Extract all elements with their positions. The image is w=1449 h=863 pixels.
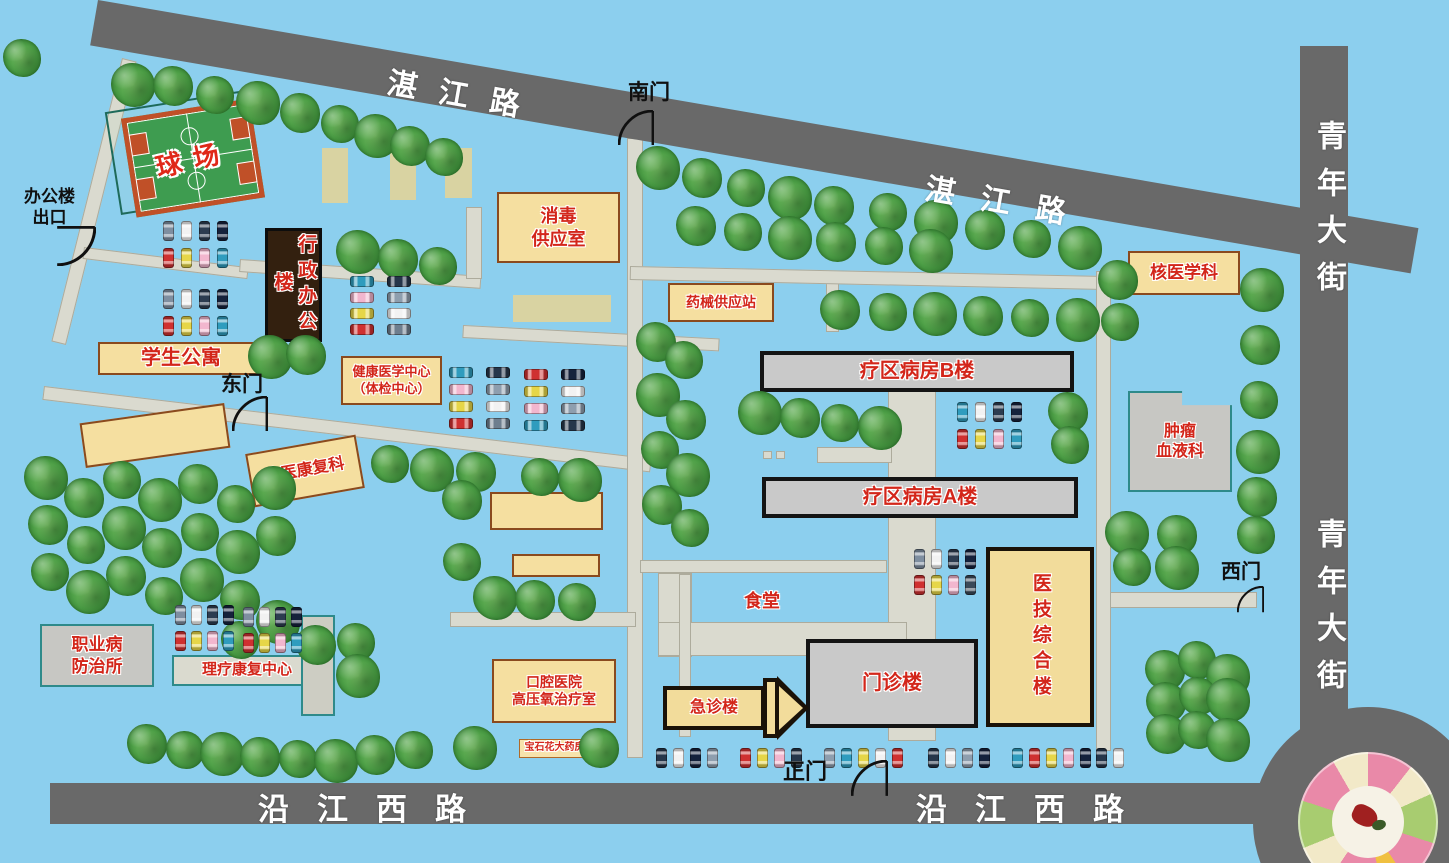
- parked-car: [387, 324, 411, 335]
- tree: [66, 570, 110, 614]
- parked-car: [449, 384, 473, 395]
- tree: [1098, 260, 1138, 300]
- tree: [1101, 303, 1139, 341]
- tree: [1240, 325, 1280, 365]
- parked-car: [561, 386, 585, 397]
- student-apartment: 学生公寓: [98, 342, 264, 375]
- canteen: 食堂: [722, 586, 802, 616]
- tree: [1206, 678, 1250, 722]
- ward-building-b-label: 疗区病房B楼: [860, 359, 974, 384]
- tree: [153, 66, 193, 106]
- occupational-disease-institute-label: 职业病防治所: [72, 634, 123, 677]
- physio-rehab-center: 理疗康复中心: [172, 655, 322, 686]
- parked-car: [259, 607, 270, 627]
- canteen-label: 食堂: [744, 590, 780, 613]
- parked-car: [223, 631, 234, 651]
- parked-car: [975, 429, 986, 449]
- tree: [858, 406, 902, 450]
- oncology-hematology: 肿瘤血液科: [1128, 391, 1232, 492]
- parked-car: [163, 289, 174, 309]
- tree: [738, 391, 782, 435]
- parked-car: [524, 369, 548, 380]
- parked-car: [1113, 748, 1124, 768]
- gate-west-door-icon: [1237, 586, 1264, 613]
- walkway: [466, 207, 482, 279]
- parked-car: [243, 633, 254, 653]
- tree: [666, 400, 706, 440]
- walkway: [640, 560, 887, 573]
- parked-car: [175, 605, 186, 625]
- parked-car: [350, 276, 374, 287]
- parked-car: [561, 369, 585, 380]
- tree: [1155, 546, 1199, 590]
- tree: [521, 458, 559, 496]
- tree: [768, 216, 812, 260]
- tree: [196, 76, 234, 114]
- tree: [217, 485, 255, 523]
- tree: [1056, 298, 1100, 342]
- parked-car: [993, 402, 1004, 422]
- parked-car: [1063, 748, 1074, 768]
- tree: [913, 292, 957, 336]
- pharmacy-supply-station: 药械供应站: [668, 283, 774, 322]
- baoshihua-pharmacy-label: 宝石花大药房: [525, 742, 585, 755]
- gate-west-label: 西门: [1221, 560, 1261, 585]
- health-center: 健康医学中心（体检中心）: [341, 356, 442, 405]
- parked-car: [387, 308, 411, 319]
- tree: [558, 458, 602, 502]
- parked-car: [350, 292, 374, 303]
- parked-car: [259, 633, 270, 653]
- parked-car: [1011, 402, 1022, 422]
- tree: [279, 740, 317, 778]
- tree: [142, 528, 182, 568]
- yanjiang-road-label-1: 沿江西路: [258, 784, 494, 829]
- parked-car: [191, 605, 202, 625]
- tree: [67, 526, 105, 564]
- occupational-disease-institute: 职业病防治所: [40, 624, 154, 687]
- parked-car: [217, 316, 228, 336]
- parked-car: [962, 748, 973, 768]
- tree: [296, 625, 336, 665]
- hospital-campus-map: 球场 行政办公楼学生公寓健康医学中心（体检中心）消毒供应室药械供应站核医学科中医…: [0, 0, 1449, 863]
- parked-car: [275, 607, 286, 627]
- disinfection-supply-label: 消毒供应室: [532, 205, 586, 250]
- tree: [378, 239, 418, 279]
- medtech-complex: 医技综合楼: [986, 547, 1094, 727]
- parked-car: [1011, 429, 1022, 449]
- tree: [515, 580, 555, 620]
- tree: [64, 478, 104, 518]
- parked-car: [975, 402, 986, 422]
- parked-car: [243, 607, 254, 627]
- gate-south-door-icon: [618, 110, 654, 146]
- disinfection-supply: 消毒供应室: [497, 192, 620, 263]
- tree: [579, 728, 619, 768]
- tree: [200, 732, 244, 776]
- pharmacy-supply-station-label: 药械供应站: [686, 294, 756, 312]
- parked-car: [275, 633, 286, 653]
- parked-car: [449, 418, 473, 429]
- tree: [106, 556, 146, 596]
- tree: [180, 558, 224, 602]
- health-center-label: 健康医学中心（体检中心）: [352, 364, 430, 397]
- gate-main-label: 正门: [783, 758, 827, 786]
- parked-car: [957, 429, 968, 449]
- gate-main-door-icon: [851, 760, 888, 797]
- tree: [1236, 430, 1280, 474]
- parked-car: [486, 401, 510, 412]
- unlabeled-building-1: [80, 403, 231, 468]
- ward-building-b: 疗区病房B楼: [760, 351, 1074, 392]
- tree: [236, 81, 280, 125]
- parked-car: [217, 289, 228, 309]
- tree: [558, 583, 596, 621]
- tree: [280, 93, 320, 133]
- parked-car: [486, 384, 510, 395]
- ward-building-a-label: 疗区病房A楼: [863, 485, 977, 510]
- physio-rehab-center-label: 理疗康复中心: [202, 661, 292, 680]
- tree: [1237, 477, 1277, 517]
- tree: [3, 39, 41, 77]
- parked-car: [191, 631, 202, 651]
- tree: [443, 543, 481, 581]
- parked-car: [199, 248, 210, 268]
- tree: [814, 186, 854, 226]
- tree: [252, 466, 296, 510]
- tree: [473, 576, 517, 620]
- parked-car: [486, 367, 510, 378]
- parked-car: [175, 631, 186, 651]
- service-pad: [322, 148, 348, 203]
- tree: [111, 63, 155, 107]
- gate-east-door-icon: [232, 396, 268, 432]
- nuclear-medicine-label: 核医学科: [1150, 262, 1218, 283]
- tree: [1240, 381, 1278, 419]
- parked-car: [561, 420, 585, 431]
- tree: [869, 193, 907, 231]
- tree: [676, 206, 716, 246]
- parked-car: [524, 386, 548, 397]
- walkway: [1110, 592, 1257, 608]
- parked-car: [486, 418, 510, 429]
- student-apartment-label: 学生公寓: [141, 346, 221, 371]
- parked-car: [993, 429, 1004, 449]
- parked-car: [673, 748, 684, 768]
- gate-south-label: 南门: [628, 80, 670, 106]
- parked-car: [928, 748, 939, 768]
- tree: [178, 464, 218, 504]
- emergency-building: 急诊楼: [663, 686, 765, 730]
- parked-car: [207, 605, 218, 625]
- dental-hyperbaric-label: 口腔医院高压氧治疗室: [512, 674, 596, 709]
- parked-car: [979, 748, 990, 768]
- admin-building-label: 行政办公楼: [270, 231, 318, 339]
- gate-office-exit-door-icon: [56, 226, 96, 266]
- tree: [103, 461, 141, 499]
- parked-car: [350, 308, 374, 319]
- tree: [727, 169, 765, 207]
- parked-car: [163, 221, 174, 241]
- tree: [671, 509, 709, 547]
- tree: [240, 737, 280, 777]
- parked-car: [223, 605, 234, 625]
- tree: [286, 335, 326, 375]
- oncology-hematology-label: 肿瘤血液科: [1156, 422, 1204, 462]
- parked-car: [656, 748, 667, 768]
- tree: [419, 247, 457, 285]
- parked-car: [948, 549, 959, 569]
- parked-car: [387, 276, 411, 287]
- parked-car: [1046, 748, 1057, 768]
- parked-car: [965, 575, 976, 595]
- dental-hyperbaric: 口腔医院高压氧治疗室: [492, 659, 616, 723]
- nuclear-medicine: 核医学科: [1128, 251, 1240, 295]
- gate-east-label: 东门: [221, 372, 263, 398]
- tree: [102, 506, 146, 550]
- parked-car: [181, 221, 192, 241]
- tree: [256, 516, 296, 556]
- parked-car: [217, 248, 228, 268]
- parked-car: [957, 402, 968, 422]
- parked-car: [1029, 748, 1040, 768]
- parked-car: [1012, 748, 1023, 768]
- parked-car: [387, 292, 411, 303]
- parked-car: [291, 633, 302, 653]
- tree: [314, 739, 358, 783]
- outpatient-building-label: 门诊楼: [862, 671, 922, 696]
- parked-car: [181, 289, 192, 309]
- tree: [395, 731, 433, 769]
- tree: [127, 724, 167, 764]
- gate-office-exit-label: 办公楼出口: [24, 186, 75, 229]
- tree: [453, 726, 497, 770]
- tree: [682, 158, 722, 198]
- tree: [1240, 268, 1284, 312]
- parked-car: [449, 401, 473, 412]
- parked-car: [757, 748, 768, 768]
- parked-car: [561, 403, 585, 414]
- parked-car: [740, 748, 751, 768]
- service-pad: [513, 295, 611, 322]
- tree: [821, 404, 859, 442]
- tree: [336, 654, 380, 698]
- tree: [1051, 426, 1089, 464]
- tree: [780, 398, 820, 438]
- emergency-arrow-bar: [763, 678, 779, 738]
- tree: [1237, 516, 1275, 554]
- parked-car: [931, 575, 942, 595]
- walkway: [776, 451, 785, 459]
- parked-car: [931, 549, 942, 569]
- tree: [820, 290, 860, 330]
- qingnian-street-label-1: 青年大街: [1306, 120, 1350, 308]
- tree: [1011, 299, 1049, 337]
- tree: [390, 126, 430, 166]
- tree: [31, 553, 69, 591]
- ward-building-a: 疗区病房A楼: [762, 477, 1078, 518]
- walkway: [763, 451, 772, 459]
- tree: [355, 735, 395, 775]
- tree: [816, 222, 856, 262]
- tree: [869, 293, 907, 331]
- parked-car: [207, 631, 218, 651]
- tree: [724, 213, 762, 251]
- tree: [336, 230, 380, 274]
- parked-car: [163, 248, 174, 268]
- unlabeled-building-3: [512, 554, 600, 577]
- tree: [166, 731, 204, 769]
- tree: [442, 480, 482, 520]
- parked-car: [350, 324, 374, 335]
- parked-car: [1080, 748, 1091, 768]
- tree: [138, 478, 182, 522]
- parked-car: [217, 221, 228, 241]
- tree: [181, 513, 219, 551]
- parked-car: [291, 607, 302, 627]
- tree: [216, 530, 260, 574]
- parked-car: [524, 403, 548, 414]
- tree: [636, 146, 680, 190]
- parked-car: [914, 549, 925, 569]
- outpatient-building: 门诊楼: [806, 639, 978, 728]
- tree: [1113, 548, 1151, 586]
- parked-car: [965, 549, 976, 569]
- tree: [371, 445, 409, 483]
- tree: [963, 296, 1003, 336]
- parked-car: [707, 748, 718, 768]
- tree: [665, 341, 703, 379]
- parked-car: [948, 575, 959, 595]
- parked-car: [892, 748, 903, 768]
- parked-car: [181, 316, 192, 336]
- emergency-building-label: 急诊楼: [690, 698, 738, 718]
- tree: [909, 229, 953, 273]
- parked-car: [181, 248, 192, 268]
- parked-car: [1096, 748, 1107, 768]
- tree: [24, 456, 68, 500]
- parked-car: [945, 748, 956, 768]
- qingnian-street-label-2: 青年大街: [1306, 518, 1350, 706]
- walkway: [1096, 271, 1111, 751]
- parked-car: [199, 316, 210, 336]
- parked-car: [524, 420, 548, 431]
- tree: [865, 227, 903, 265]
- admin-building: 行政办公楼: [265, 228, 322, 342]
- tree: [28, 505, 68, 545]
- parked-car: [199, 221, 210, 241]
- medtech-complex-label: 医技综合楼: [1028, 573, 1052, 701]
- tree: [425, 138, 463, 176]
- parked-car: [914, 575, 925, 595]
- parked-car: [449, 367, 473, 378]
- tree: [1206, 718, 1250, 762]
- parked-car: [690, 748, 701, 768]
- tree: [768, 176, 812, 220]
- parked-car: [199, 289, 210, 309]
- yanjiang-road-label-2: 沿江西路: [916, 784, 1152, 829]
- parked-car: [163, 316, 174, 336]
